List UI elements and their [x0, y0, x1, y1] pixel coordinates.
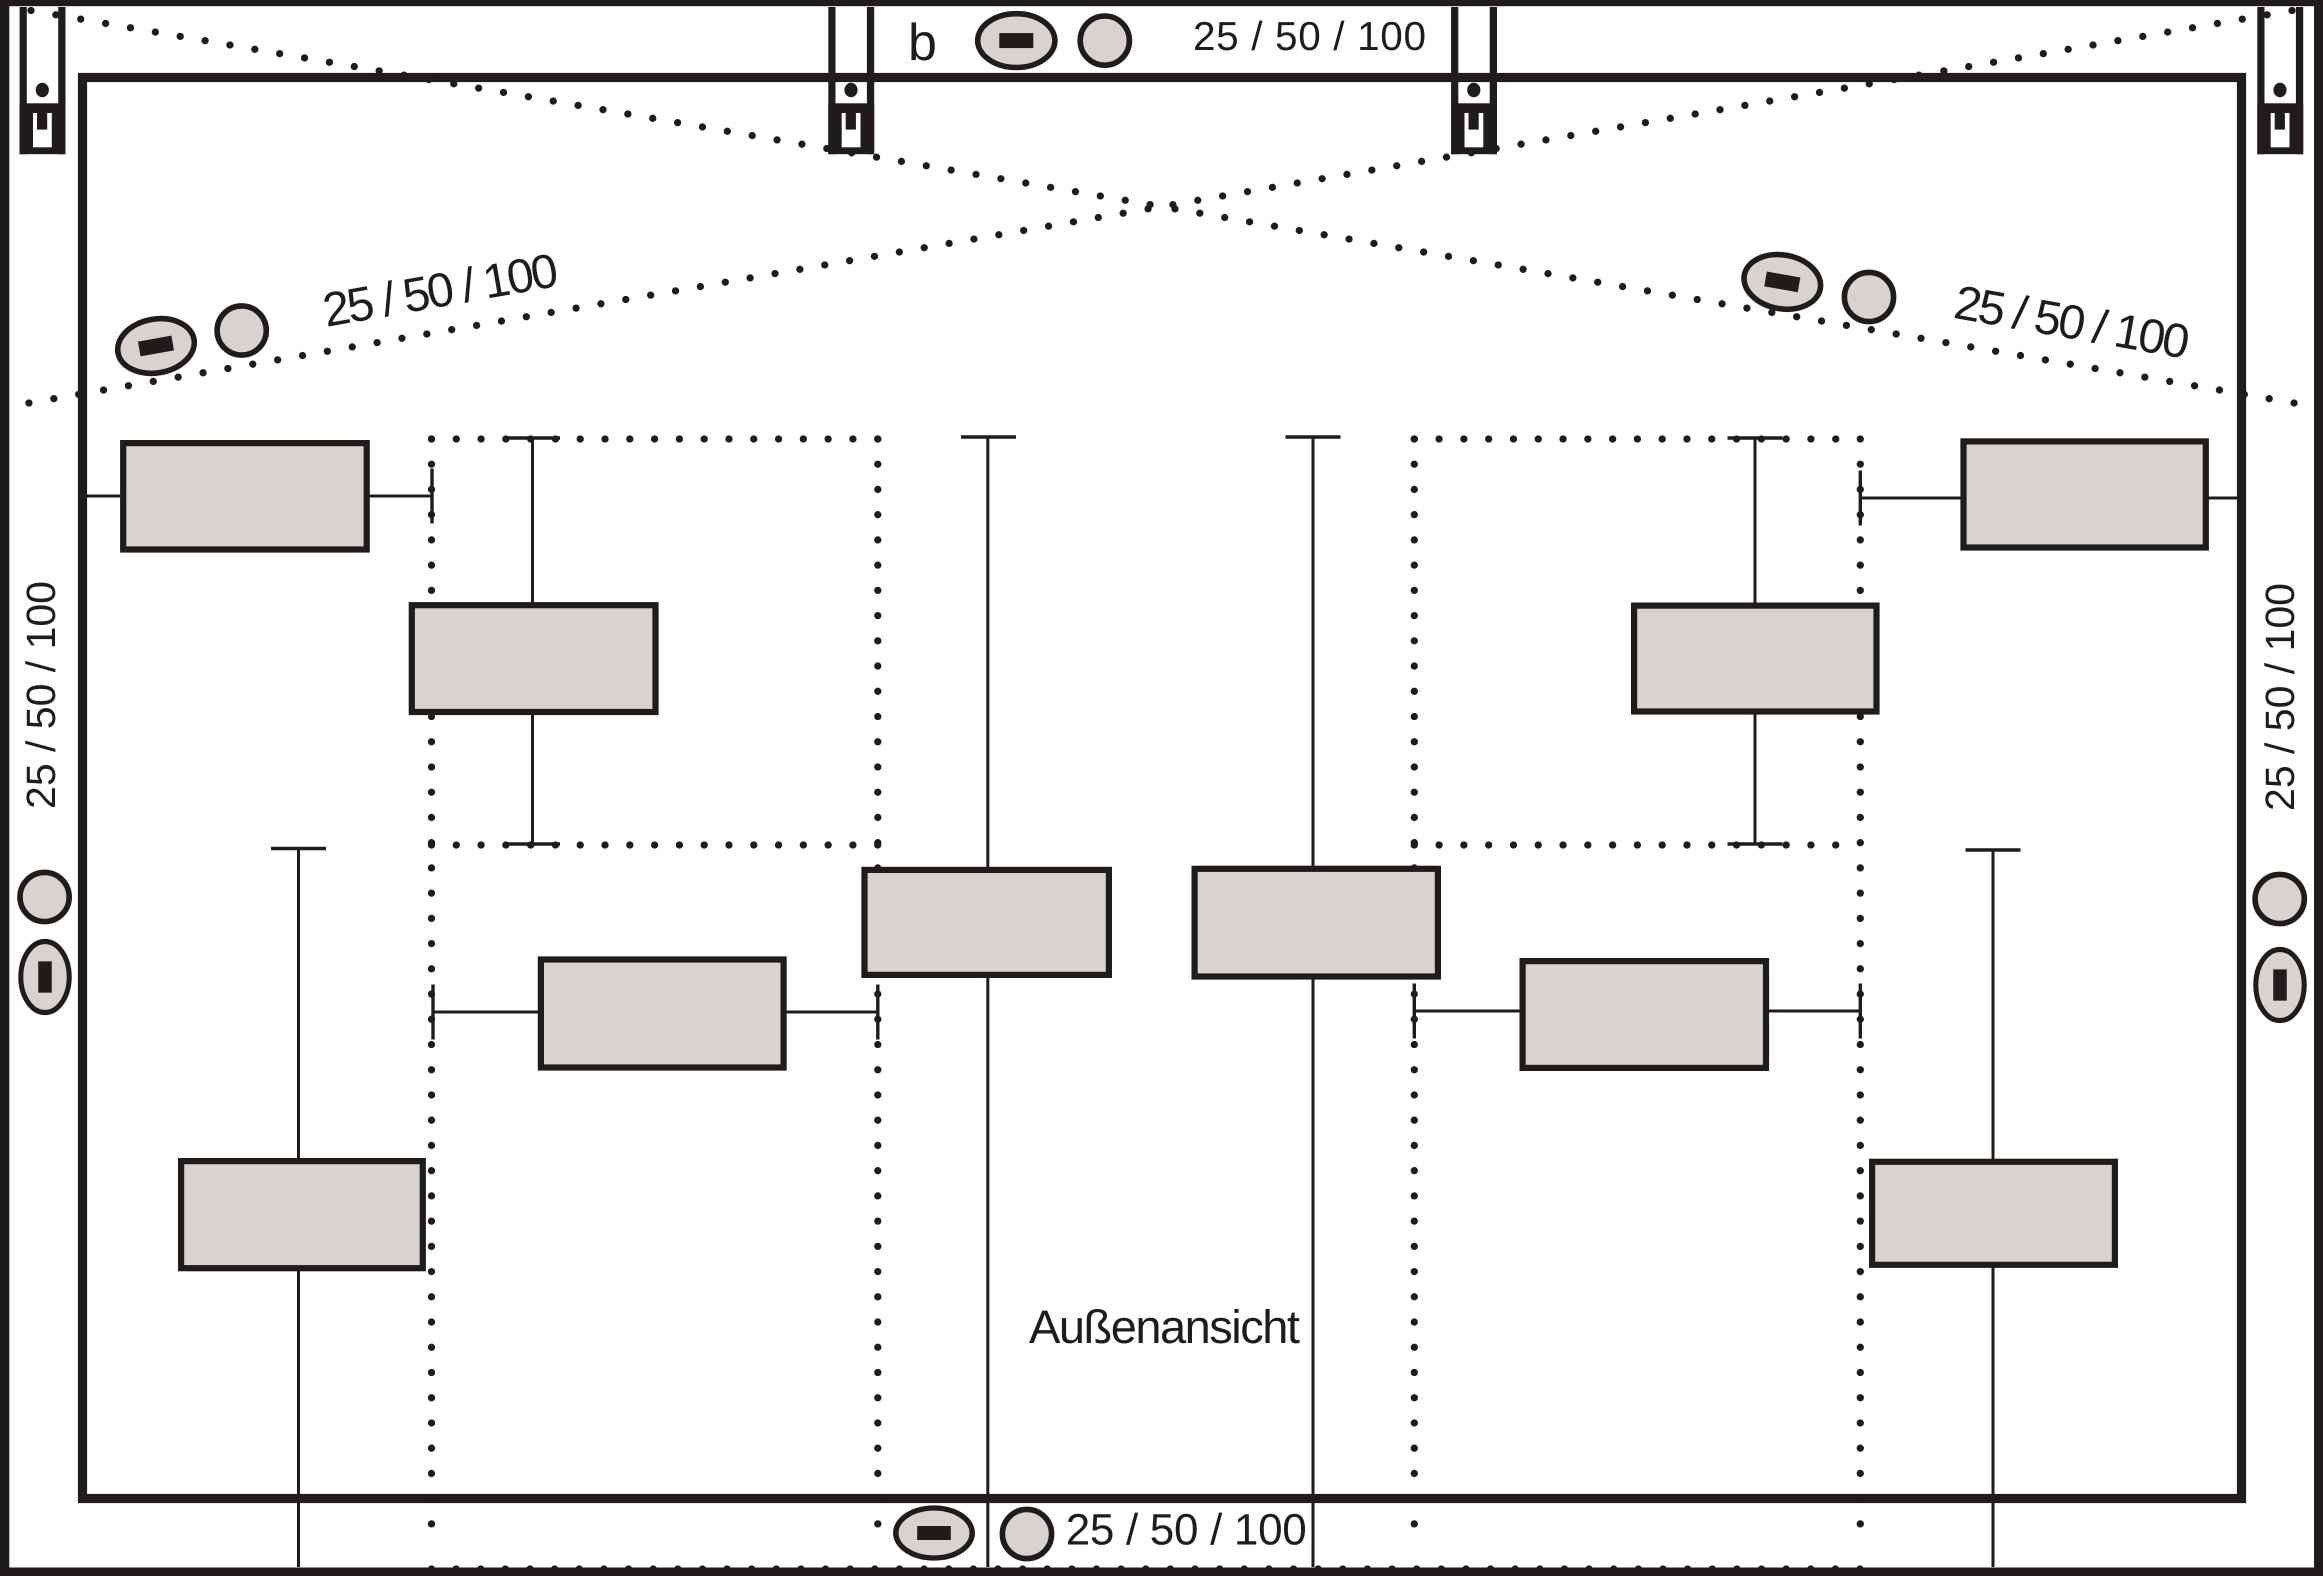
svg-text:25 / 50 / 100: 25 / 50 / 100 [2257, 583, 2303, 811]
svg-text:b: b [908, 14, 937, 72]
svg-text:25 / 50 / 100: 25 / 50 / 100 [1066, 1506, 1307, 1555]
svg-text:25 / 50 / 100: 25 / 50 / 100 [1193, 13, 1427, 59]
svg-text:Außenansicht: Außenansicht [1029, 1300, 1300, 1353]
svg-text:25 / 50 / 100: 25 / 50 / 100 [18, 581, 64, 809]
